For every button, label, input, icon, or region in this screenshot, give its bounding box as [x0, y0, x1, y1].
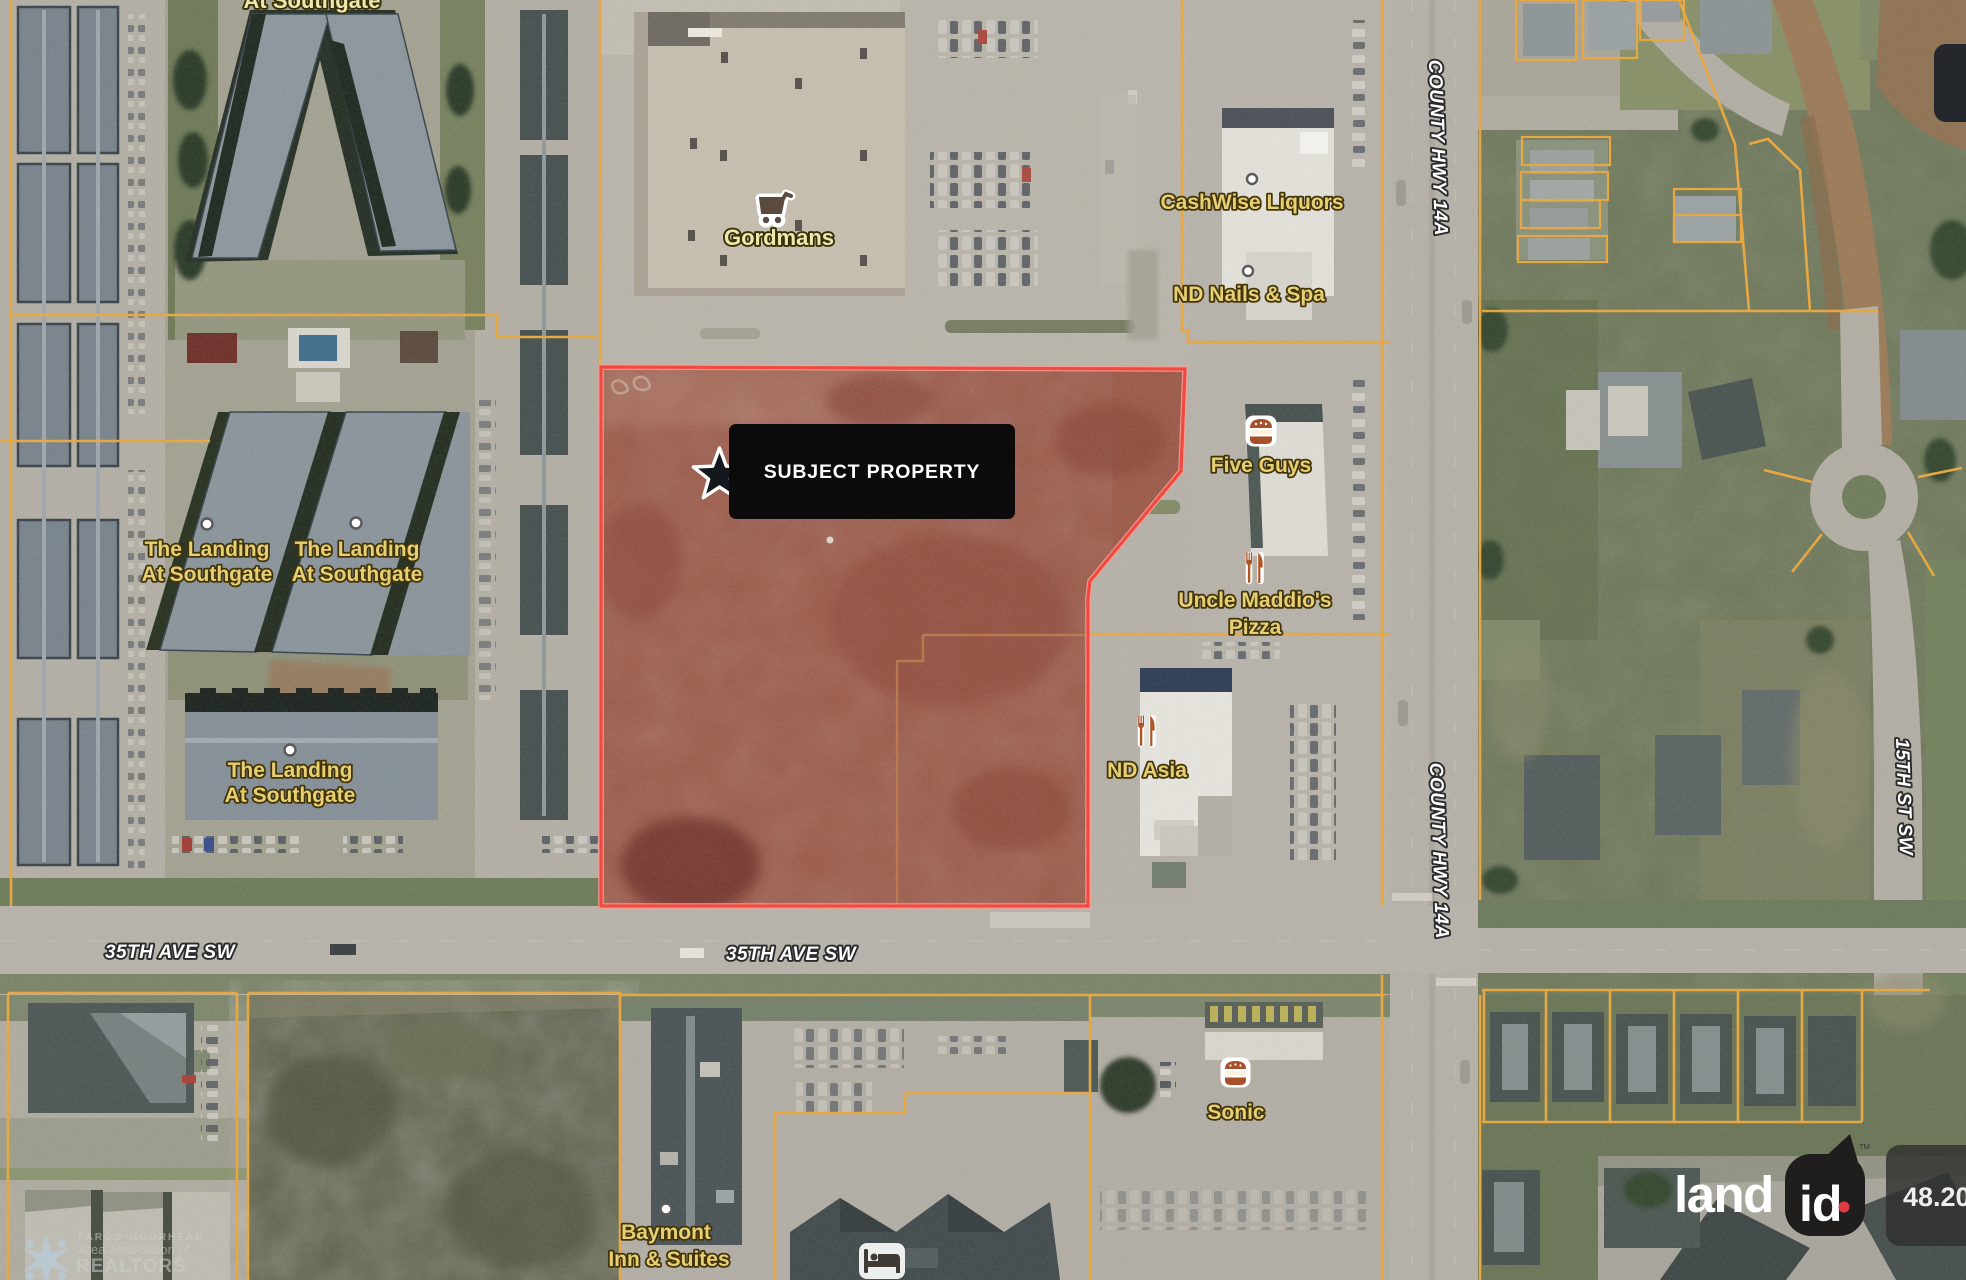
- svg-text:The Landing: The Landing: [228, 759, 353, 782]
- svg-text:48.20: 48.20: [1903, 1182, 1966, 1212]
- svg-text:Area Association of: Area Association of: [78, 1242, 190, 1257]
- svg-text:35TH AVE SW: 35TH AVE SW: [105, 942, 237, 963]
- svg-text:Uncle Maddio's: Uncle Maddio's: [1178, 589, 1331, 612]
- svg-text:id: id: [1799, 1176, 1841, 1232]
- svg-text:At Southgate: At Southgate: [225, 784, 356, 807]
- svg-text:At Southgate: At Southgate: [142, 563, 273, 586]
- svg-text:Five Guys: Five Guys: [1211, 454, 1311, 477]
- svg-text:At Southgate: At Southgate: [292, 563, 423, 586]
- svg-text:Baymont: Baymont: [621, 1221, 711, 1244]
- svg-text:The Landing: The Landing: [295, 538, 420, 561]
- svg-text:®: ®: [177, 1254, 183, 1263]
- svg-text:ND Asia: ND Asia: [1107, 759, 1187, 782]
- svg-text:TM: TM: [1859, 1142, 1870, 1151]
- svg-text:Inn & Suites: Inn & Suites: [608, 1248, 729, 1271]
- svg-text:15TH ST SW: 15TH ST SW: [1891, 738, 1916, 857]
- svg-text:The Landing: The Landing: [145, 538, 270, 561]
- svg-text:SUBJECT PROPERTY: SUBJECT PROPERTY: [764, 461, 981, 483]
- svg-text:Gordmans: Gordmans: [724, 225, 834, 250]
- svg-text:land: land: [1674, 1166, 1773, 1223]
- svg-text:Pizza: Pizza: [1229, 616, 1282, 639]
- svg-text:REALTORS: REALTORS: [76, 1256, 187, 1277]
- svg-text:Sonic: Sonic: [1207, 1101, 1264, 1124]
- svg-text:35TH AVE SW: 35TH AVE SW: [726, 944, 858, 965]
- svg-text:ND Nails & Spa: ND Nails & Spa: [1173, 283, 1325, 306]
- svg-text:At Southgate: At Southgate: [244, 0, 381, 13]
- svg-text:CashWise Liquors: CashWise Liquors: [1160, 191, 1343, 214]
